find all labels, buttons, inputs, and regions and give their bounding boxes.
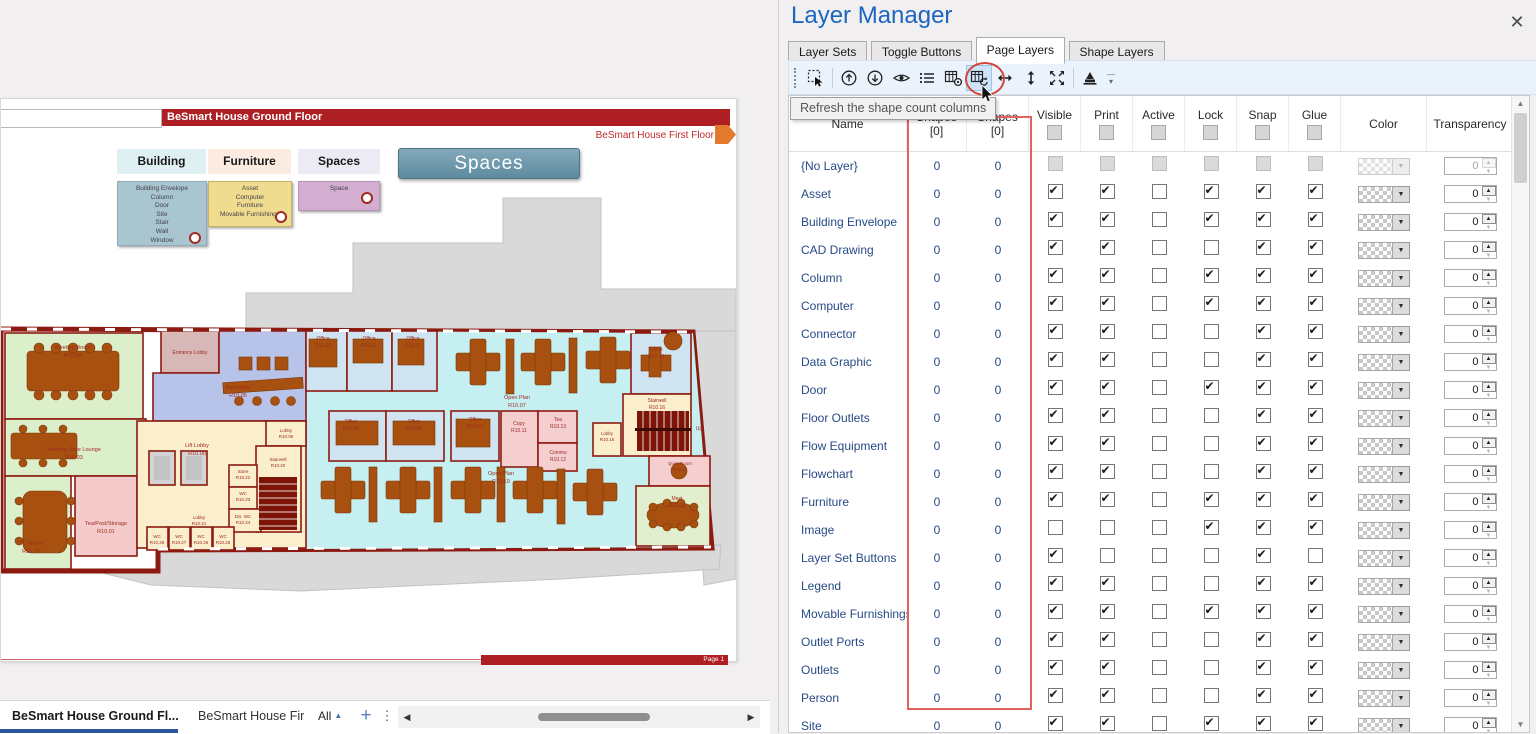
snap-checkbox[interactable] — [1256, 324, 1271, 339]
table-row[interactable]: Building Envelope 0 0 ▼ 0 ▲▼ — [789, 208, 1513, 236]
glue-checkbox[interactable] — [1308, 212, 1323, 227]
transparency-spinner[interactable]: 0 ▲▼ — [1444, 493, 1497, 511]
lock-checkbox[interactable] — [1204, 352, 1219, 367]
table-row[interactable]: Layer Set Buttons 0 0 ▼ 0 ▲▼ — [789, 544, 1513, 572]
spinner-down-icon[interactable]: ▼ — [1482, 308, 1496, 316]
transparency-spinner[interactable]: 0 ▲▼ — [1444, 465, 1497, 483]
lock-checkbox[interactable] — [1204, 436, 1219, 451]
snap-cell — [1237, 604, 1289, 624]
spinner-up-icon[interactable]: ▲ — [1482, 410, 1496, 420]
table-row[interactable]: Legend 0 0 ▼ 0 ▲▼ — [789, 572, 1513, 600]
lock-checkbox[interactable] — [1204, 380, 1219, 395]
lock-checkbox[interactable] — [1204, 408, 1219, 423]
visible-checkbox[interactable] — [1048, 408, 1063, 423]
color-dropdown-button[interactable]: ▼ — [1393, 494, 1410, 511]
snap-checkbox[interactable] — [1256, 464, 1271, 479]
lock-checkbox[interactable] — [1204, 632, 1219, 647]
header-checkbox[interactable] — [1047, 125, 1062, 140]
transparency-spinner[interactable]: 0 ▲▼ — [1444, 157, 1497, 175]
table-row[interactable]: Flow Equipment 0 0 ▼ 0 ▲▼ — [789, 432, 1513, 460]
glue-checkbox[interactable] — [1308, 324, 1323, 339]
glue-cell — [1289, 632, 1341, 652]
color-cell: ▼ — [1341, 550, 1427, 567]
transparency-spinner[interactable]: 0 ▲▼ — [1444, 689, 1497, 707]
tab-page-layers[interactable]: Page Layers — [976, 37, 1065, 64]
spinner-down-icon[interactable]: ▼ — [1482, 196, 1496, 204]
visible-checkbox[interactable] — [1048, 184, 1063, 199]
visible-checkbox[interactable] — [1048, 212, 1063, 227]
print-checkbox[interactable] — [1100, 268, 1115, 283]
spinner-up-icon[interactable]: ▲ — [1482, 522, 1496, 532]
active-checkbox[interactable] — [1152, 632, 1167, 647]
glue-checkbox[interactable] — [1308, 296, 1323, 311]
spinner-down-icon[interactable]: ▼ — [1482, 728, 1496, 732]
transparency-spinner[interactable]: 0 ▲▼ — [1444, 241, 1497, 259]
print-checkbox[interactable] — [1100, 380, 1115, 395]
spinner-up-icon[interactable]: ▲ — [1482, 718, 1496, 728]
snap-checkbox[interactable] — [1256, 184, 1271, 199]
spinner-down-icon[interactable]: ▼ — [1482, 364, 1496, 372]
glue-checkbox[interactable] — [1308, 380, 1323, 395]
table-settings-icon[interactable] — [940, 65, 966, 91]
eye-icon[interactable] — [888, 65, 914, 91]
toggle-button-furniture[interactable]: Furniture — [208, 149, 291, 174]
header-checkbox[interactable] — [1255, 125, 1270, 140]
visible-checkbox[interactable] — [1048, 436, 1063, 451]
active-checkbox[interactable] — [1152, 352, 1167, 367]
color-dropdown-button[interactable]: ▼ — [1393, 242, 1410, 259]
visible-checkbox[interactable] — [1048, 548, 1063, 563]
color-dropdown-button[interactable]: ▼ — [1393, 214, 1410, 231]
drag-handle-icon[interactable] — [794, 68, 799, 88]
toggle-button-spaces[interactable]: Spaces — [298, 149, 380, 174]
lock-checkbox[interactable] — [1204, 716, 1219, 731]
glue-checkbox[interactable] — [1308, 688, 1323, 703]
snap-checkbox[interactable] — [1256, 296, 1271, 311]
color-dropdown-button[interactable]: ▼ — [1393, 438, 1410, 455]
lock-checkbox[interactable] — [1204, 688, 1219, 703]
snap-checkbox[interactable] — [1256, 240, 1271, 255]
table-vertical-scrollbar[interactable]: ▲ ▼ — [1511, 96, 1529, 732]
svg-text:R10.12: R10.12 — [550, 457, 566, 463]
page-tab-second[interactable]: BeSmart House Fir — [198, 701, 304, 733]
print-checkbox[interactable] — [1100, 660, 1115, 675]
transparency-spinner[interactable]: 0 ▲▼ — [1444, 549, 1497, 567]
color-dropdown-button[interactable]: ▼ — [1393, 690, 1410, 707]
lock-checkbox[interactable] — [1204, 184, 1219, 199]
page-tab-active[interactable]: BeSmart House Ground Fl... — [0, 701, 178, 733]
print-checkbox[interactable] — [1100, 492, 1115, 507]
glue-checkbox[interactable] — [1308, 716, 1323, 731]
color-dropdown-button[interactable]: ▼ — [1393, 466, 1410, 483]
active-checkbox[interactable] — [1152, 184, 1167, 199]
color-dropdown-button[interactable]: ▼ — [1393, 186, 1410, 203]
visible-checkbox[interactable] — [1048, 296, 1063, 311]
table-row[interactable]: Data Graphic 0 0 ▼ 0 ▲▼ — [789, 348, 1513, 376]
spinner-up-icon[interactable]: ▲ — [1482, 550, 1496, 560]
room-tea-post-storage[interactable] — [75, 476, 137, 556]
glue-cell — [1289, 548, 1341, 568]
lock-checkbox[interactable] — [1204, 268, 1219, 283]
table-row[interactable]: Site 0 0 ▼ 0 ▲▼ — [789, 712, 1513, 732]
print-checkbox[interactable] — [1100, 688, 1115, 703]
print-checkbox[interactable] — [1100, 576, 1115, 591]
layer-name: {No Layer} — [789, 159, 907, 173]
transparency-spinner[interactable]: 0 ▲▼ — [1444, 381, 1497, 399]
active-checkbox[interactable] — [1152, 688, 1167, 703]
spinner-down-icon[interactable]: ▼ — [1482, 336, 1496, 344]
active-checkbox[interactable] — [1152, 408, 1167, 423]
visible-checkbox[interactable] — [1048, 632, 1063, 647]
spinner-up-icon[interactable]: ▲ — [1482, 662, 1496, 672]
spinner-down-icon[interactable]: ▼ — [1482, 532, 1496, 540]
visible-checkbox[interactable] — [1048, 464, 1063, 479]
toggle-indicator-icon[interactable] — [189, 232, 201, 244]
visible-checkbox[interactable] — [1048, 324, 1063, 339]
spinner-up-icon[interactable]: ▲ — [1482, 326, 1496, 336]
glue-checkbox[interactable] — [1308, 576, 1323, 591]
glue-checkbox[interactable] — [1308, 492, 1323, 507]
print-checkbox[interactable] — [1100, 156, 1115, 171]
scroll-down-icon[interactable]: ▼ — [1512, 717, 1529, 732]
snap-checkbox[interactable] — [1256, 716, 1271, 731]
table-row[interactable]: Flowchart 0 0 ▼ 0 ▲▼ — [789, 460, 1513, 488]
spinner-down-icon[interactable]: ▼ — [1482, 672, 1496, 680]
pages-filter-dropdown[interactable]: All▲ — [318, 701, 342, 733]
toggle-indicator-icon[interactable] — [275, 211, 287, 223]
spinner-up-icon[interactable]: ▲ — [1482, 214, 1496, 224]
glue-checkbox[interactable] — [1308, 268, 1323, 283]
color-dropdown-button[interactable]: ▼ — [1393, 354, 1410, 371]
transparency-spinner[interactable]: 0 ▲▼ — [1444, 605, 1497, 623]
snap-checkbox[interactable] — [1256, 156, 1271, 171]
print-checkbox[interactable] — [1100, 296, 1115, 311]
transparency-spinner[interactable]: 0 ▲▼ — [1444, 325, 1497, 343]
first-floor-link[interactable]: BeSmart House First Floor — [596, 130, 714, 141]
active-checkbox[interactable] — [1152, 520, 1167, 535]
active-checkbox[interactable] — [1152, 660, 1167, 675]
spinner-down-icon[interactable]: ▼ — [1482, 588, 1496, 596]
svg-text:Office: Office — [363, 336, 376, 342]
spinner-down-icon[interactable]: ▼ — [1482, 224, 1496, 232]
active-checkbox[interactable] — [1152, 296, 1167, 311]
active-checkbox[interactable] — [1152, 240, 1167, 255]
stamp-icon[interactable] — [1077, 65, 1103, 91]
table-row[interactable]: Image 0 0 ▼ 0 ▲▼ — [789, 516, 1513, 544]
color-dropdown-button[interactable]: ▼ — [1393, 550, 1410, 567]
header-checkbox[interactable] — [1203, 125, 1218, 140]
snap-checkbox[interactable] — [1256, 268, 1271, 283]
glue-checkbox[interactable] — [1308, 184, 1323, 199]
drawing-page[interactable]: Meeting Room R10.04 Entrance Lobby Recep… — [0, 98, 737, 662]
spinner-up-icon[interactable]: ▲ — [1482, 606, 1496, 616]
header-checkbox[interactable] — [1099, 125, 1114, 140]
color-dropdown-button[interactable]: ▼ — [1393, 382, 1410, 399]
table-row[interactable]: Movable Furnishings 0 0 ▼ 0 ▲▼ — [789, 600, 1513, 628]
active-checkbox[interactable] — [1152, 380, 1167, 395]
panel-toolbar: —▾ — [788, 60, 1536, 95]
spinner-down-icon[interactable]: ▼ — [1482, 560, 1496, 568]
snap-checkbox[interactable] — [1256, 576, 1271, 591]
print-checkbox[interactable] — [1100, 240, 1115, 255]
active-checkbox[interactable] — [1152, 464, 1167, 479]
layer-name: Layer Set Buttons — [789, 551, 907, 565]
spinner-up-icon[interactable]: ▲ — [1482, 690, 1496, 700]
transparency-cell: 0 ▲▼ — [1427, 269, 1513, 287]
close-icon[interactable]: ✕ — [1507, 12, 1527, 33]
lock-checkbox[interactable] — [1204, 296, 1219, 311]
snap-checkbox[interactable] — [1256, 212, 1271, 227]
transparency-spinner[interactable]: 0 ▲▼ — [1444, 661, 1497, 679]
spinner-up-icon[interactable]: ▲ — [1482, 438, 1496, 448]
visible-checkbox[interactable] — [1048, 380, 1063, 395]
glue-checkbox[interactable] — [1308, 632, 1323, 647]
active-checkbox[interactable] — [1152, 604, 1167, 619]
visible-checkbox[interactable] — [1048, 492, 1063, 507]
table-refresh-icon[interactable] — [966, 65, 992, 91]
transparency-spinner[interactable]: 0 ▲▼ — [1444, 213, 1497, 231]
spinner-up-icon[interactable]: ▲ — [1482, 270, 1496, 280]
color-dropdown-button[interactable]: ▼ — [1393, 606, 1410, 623]
spinner-down-icon[interactable]: ▼ — [1482, 420, 1496, 428]
spinner-up-icon[interactable]: ▲ — [1482, 158, 1496, 168]
spinner-up-icon[interactable]: ▲ — [1482, 242, 1496, 252]
scroll-left-icon[interactable]: ◀ — [400, 706, 414, 728]
shape-count-2: 0 — [967, 495, 1029, 509]
print-checkbox[interactable] — [1100, 352, 1115, 367]
table-row[interactable]: Outlet Ports 0 0 ▼ 0 ▲▼ — [789, 628, 1513, 656]
lock-checkbox[interactable] — [1204, 604, 1219, 619]
color-dropdown-button[interactable]: ▼ — [1393, 410, 1410, 427]
print-checkbox[interactable] — [1100, 520, 1115, 535]
canvas-horizontal-scrollbar[interactable]: ◀ ▶ — [398, 706, 760, 728]
glue-checkbox[interactable] — [1308, 436, 1323, 451]
print-checkbox[interactable] — [1100, 324, 1115, 339]
snap-checkbox[interactable] — [1256, 492, 1271, 507]
visible-checkbox[interactable] — [1048, 688, 1063, 703]
glue-checkbox[interactable] — [1308, 408, 1323, 423]
snap-checkbox[interactable] — [1256, 604, 1271, 619]
color-dropdown-button[interactable]: ▼ — [1393, 270, 1410, 287]
snap-checkbox[interactable] — [1256, 380, 1271, 395]
lock-checkbox[interactable] — [1204, 576, 1219, 591]
shape-count-1: 0 — [907, 383, 967, 397]
active-checkbox[interactable] — [1152, 156, 1167, 171]
transparency-spinner[interactable]: 0 ▲▼ — [1444, 577, 1497, 595]
print-checkbox[interactable] — [1100, 464, 1115, 479]
glue-checkbox[interactable] — [1308, 240, 1323, 255]
glue-checkbox[interactable] — [1308, 520, 1323, 535]
lock-checkbox[interactable] — [1204, 240, 1219, 255]
transparency-spinner[interactable]: 0 ▲▼ — [1444, 717, 1497, 732]
color-dropdown-button[interactable]: ▼ — [1393, 718, 1410, 733]
list-icon[interactable] — [914, 65, 940, 91]
snap-cell — [1237, 716, 1289, 732]
visible-checkbox[interactable] — [1048, 604, 1063, 619]
scroll-right-icon[interactable]: ▶ — [744, 706, 758, 728]
print-checkbox[interactable] — [1100, 408, 1115, 423]
table-row[interactable]: Computer 0 0 ▼ 0 ▲▼ — [789, 292, 1513, 320]
legend-line: Stair — [118, 219, 206, 228]
snap-checkbox[interactable] — [1256, 436, 1271, 451]
expand-icon[interactable] — [1044, 65, 1070, 91]
table-row[interactable]: Connector 0 0 ▼ 0 ▲▼ — [789, 320, 1513, 348]
table-row[interactable]: Asset 0 0 ▼ 0 ▲▼ — [789, 180, 1513, 208]
spinner-up-icon[interactable]: ▲ — [1482, 578, 1496, 588]
lock-checkbox[interactable] — [1204, 212, 1219, 227]
spinner-down-icon[interactable]: ▼ — [1482, 392, 1496, 400]
color-dropdown-button[interactable]: ▼ — [1393, 662, 1410, 679]
glue-cell — [1289, 436, 1341, 456]
visible-checkbox[interactable] — [1048, 576, 1063, 591]
glue-checkbox[interactable] — [1308, 156, 1323, 171]
header-checkbox[interactable] — [1151, 125, 1166, 140]
print-checkbox[interactable] — [1100, 548, 1115, 563]
visible-cell — [1029, 436, 1081, 456]
more-options-icon[interactable]: ⋮ — [380, 701, 394, 733]
lock-checkbox[interactable] — [1204, 156, 1219, 171]
color-dropdown-button[interactable]: ▼ — [1393, 634, 1410, 651]
snap-checkbox[interactable] — [1256, 548, 1271, 563]
table-row[interactable]: CAD Drawing 0 0 ▼ 0 ▲▼ — [789, 236, 1513, 264]
transparency-spinner[interactable]: 0 ▲▼ — [1444, 521, 1497, 539]
layer-name: Floor Outlets — [789, 411, 907, 425]
spinner-down-icon[interactable]: ▼ — [1482, 280, 1496, 288]
active-cell — [1133, 548, 1185, 568]
spinner-down-icon[interactable]: ▼ — [1482, 616, 1496, 624]
table-row[interactable]: Door 0 0 ▼ 0 ▲▼ — [789, 376, 1513, 404]
color-dropdown-button[interactable]: ▼ — [1393, 578, 1410, 595]
overflow-chevron-icon[interactable]: —▾ — [1107, 71, 1115, 85]
glue-checkbox[interactable] — [1308, 464, 1323, 479]
spinner-down-icon[interactable]: ▼ — [1482, 448, 1496, 456]
visible-checkbox[interactable] — [1048, 156, 1063, 171]
transparency-cell: 0 ▲▼ — [1427, 577, 1513, 595]
marquee-select-icon[interactable] — [803, 65, 829, 91]
active-checkbox[interactable] — [1152, 716, 1167, 731]
visible-checkbox[interactable] — [1048, 660, 1063, 675]
snap-checkbox[interactable] — [1256, 632, 1271, 647]
transparency-value: 0 — [1445, 214, 1482, 230]
lock-checkbox[interactable] — [1204, 464, 1219, 479]
spinner-up-icon[interactable]: ▲ — [1482, 634, 1496, 644]
lock-checkbox[interactable] — [1204, 324, 1219, 339]
spinner-up-icon[interactable]: ▲ — [1482, 354, 1496, 364]
snap-checkbox[interactable] — [1256, 520, 1271, 535]
spinner-down-icon[interactable]: ▼ — [1482, 252, 1496, 260]
spinner-down-icon[interactable]: ▼ — [1482, 504, 1496, 512]
transparency-spinner[interactable]: 0 ▲▼ — [1444, 353, 1497, 371]
print-checkbox[interactable] — [1100, 212, 1115, 227]
active-checkbox[interactable] — [1152, 268, 1167, 283]
transparency-spinner[interactable]: 0 ▲▼ — [1444, 437, 1497, 455]
fit-height-icon[interactable] — [1018, 65, 1044, 91]
active-checkbox[interactable] — [1152, 576, 1167, 591]
transparency-spinner[interactable]: 0 ▲▼ — [1444, 269, 1497, 287]
lock-checkbox[interactable] — [1204, 492, 1219, 507]
spinner-up-icon[interactable]: ▲ — [1482, 382, 1496, 392]
print-checkbox[interactable] — [1100, 184, 1115, 199]
spinner-up-icon[interactable]: ▲ — [1482, 494, 1496, 504]
glue-checkbox[interactable] — [1308, 660, 1323, 675]
table-row[interactable]: Outlets 0 0 ▼ 0 ▲▼ — [789, 656, 1513, 684]
active-checkbox[interactable] — [1152, 548, 1167, 563]
visible-checkbox[interactable] — [1048, 240, 1063, 255]
active-checkbox[interactable] — [1152, 436, 1167, 451]
spinner-down-icon[interactable]: ▼ — [1482, 700, 1496, 708]
table-row[interactable]: Furniture 0 0 ▼ 0 ▲▼ — [789, 488, 1513, 516]
scroll-up-icon[interactable]: ▲ — [1512, 96, 1529, 111]
transparency-spinner[interactable]: 0 ▲▼ — [1444, 409, 1497, 427]
table-row[interactable]: {No Layer} 0 0 ▼ 0 ▲▼ — [789, 152, 1513, 180]
table-row[interactable]: Column 0 0 ▼ 0 ▲▼ — [789, 264, 1513, 292]
print-cell — [1081, 548, 1133, 568]
toggle-indicator-icon[interactable] — [361, 192, 373, 204]
spinner-down-icon[interactable]: ▼ — [1482, 644, 1496, 652]
glue-checkbox[interactable] — [1308, 352, 1323, 367]
color-dropdown-button[interactable]: ▼ — [1393, 158, 1410, 175]
lock-checkbox[interactable] — [1204, 520, 1219, 535]
color-dropdown-button[interactable]: ▼ — [1393, 298, 1410, 315]
scrollbar-thumb[interactable] — [1514, 113, 1527, 183]
room-copy-11[interactable] — [501, 411, 538, 467]
add-page-button[interactable]: + — [355, 701, 377, 733]
scrollbar-thumb[interactable] — [538, 713, 650, 721]
active-checkbox[interactable] — [1152, 212, 1167, 227]
table-row[interactable]: Floor Outlets 0 0 ▼ 0 ▲▼ — [789, 404, 1513, 432]
transparency-spinner[interactable]: 0 ▲▼ — [1444, 633, 1497, 651]
table-row[interactable]: Person 0 0 ▼ 0 ▲▼ — [789, 684, 1513, 712]
layer-name: Furniture — [789, 495, 907, 509]
color-dropdown-button[interactable]: ▼ — [1393, 522, 1410, 539]
print-checkbox[interactable] — [1100, 716, 1115, 731]
color-dropdown-button[interactable]: ▼ — [1393, 326, 1410, 343]
lock-checkbox[interactable] — [1204, 548, 1219, 563]
circle-up-arrow-icon[interactable] — [836, 65, 862, 91]
print-checkbox[interactable] — [1100, 436, 1115, 451]
visible-checkbox[interactable] — [1048, 352, 1063, 367]
glue-checkbox[interactable] — [1308, 548, 1323, 563]
snap-checkbox[interactable] — [1256, 352, 1271, 367]
lock-checkbox[interactable] — [1204, 660, 1219, 675]
print-cell — [1081, 688, 1133, 708]
print-checkbox[interactable] — [1100, 632, 1115, 647]
circle-down-arrow-icon[interactable] — [862, 65, 888, 91]
drawing-canvas[interactable]: Meeting Room R10.04 Entrance Lobby Recep… — [0, 0, 756, 700]
visible-checkbox[interactable] — [1048, 268, 1063, 283]
transparency-spinner[interactable]: 0 ▲▼ — [1444, 297, 1497, 315]
snap-checkbox[interactable] — [1256, 660, 1271, 675]
spinner-down-icon[interactable]: ▼ — [1482, 168, 1496, 176]
spinner-up-icon[interactable]: ▲ — [1482, 298, 1496, 308]
toggle-button-building[interactable]: Building — [117, 149, 206, 174]
print-checkbox[interactable] — [1100, 604, 1115, 619]
visible-checkbox[interactable] — [1048, 520, 1063, 535]
glue-checkbox[interactable] — [1308, 604, 1323, 619]
fit-width-icon[interactable] — [992, 65, 1018, 91]
spinner-up-icon[interactable]: ▲ — [1482, 186, 1496, 196]
transparency-spinner[interactable]: 0 ▲▼ — [1444, 185, 1497, 203]
active-checkbox[interactable] — [1152, 492, 1167, 507]
spaces-layer-set-button[interactable]: Spaces — [398, 148, 580, 179]
header-checkbox[interactable] — [1307, 125, 1322, 140]
spinner-down-icon[interactable]: ▼ — [1482, 476, 1496, 484]
visible-checkbox[interactable] — [1048, 716, 1063, 731]
snap-checkbox[interactable] — [1256, 408, 1271, 423]
active-checkbox[interactable] — [1152, 324, 1167, 339]
snap-checkbox[interactable] — [1256, 688, 1271, 703]
spinner-up-icon[interactable]: ▲ — [1482, 466, 1496, 476]
